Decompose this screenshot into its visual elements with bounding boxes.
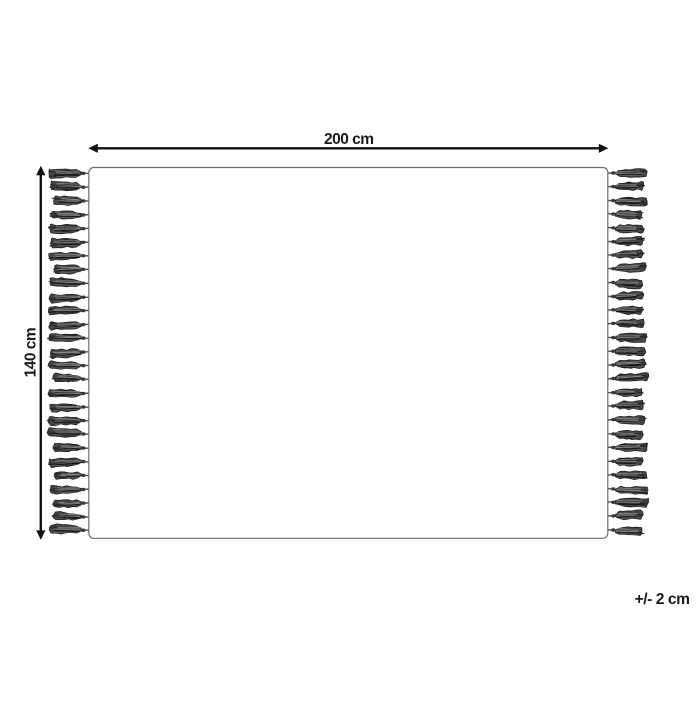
- svg-text:140 cm: 140 cm: [23, 328, 40, 378]
- svg-text:+/- 2 cm: +/- 2 cm: [635, 591, 690, 608]
- svg-text:200 cm: 200 cm: [324, 131, 374, 148]
